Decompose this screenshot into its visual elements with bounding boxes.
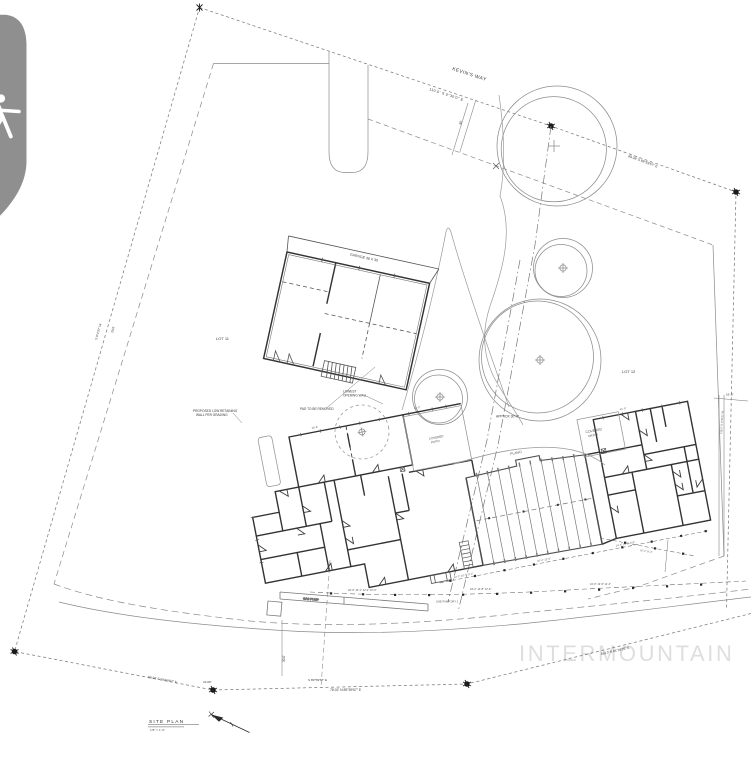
svg-text:PLANO: PLANO xyxy=(510,450,522,456)
svg-text:36'-8": 36'-8" xyxy=(311,425,318,430)
svg-text:20'-0" 16'-1" 12'-4" 10'-0": 20'-0" 16'-1" 12'-4" 10'-0" xyxy=(348,588,377,592)
svg-text:LOT 12: LOT 12 xyxy=(622,369,636,374)
svg-text:OPENING WALL: OPENING WALL xyxy=(343,394,367,398)
svg-text:16'-0" 13'-5" 11'-0": 16'-0" 13'-5" 11'-0" xyxy=(590,582,611,586)
svg-text:PATIO: PATIO xyxy=(431,439,441,445)
svg-text:41'-6": 41'-6" xyxy=(619,406,626,411)
svg-text:30.0': 30.0' xyxy=(282,655,286,662)
svg-text:1/8" = 1'-0": 1/8" = 1'-0" xyxy=(150,728,165,732)
svg-text:LINE PUMP DRY 2: LINE PUMP DRY 2 xyxy=(436,600,459,604)
svg-text:10'-2" 8'-4": 10'-2" 8'-4" xyxy=(640,548,653,554)
svg-text:16'-0": 16'-0" xyxy=(726,393,734,397)
svg-text:12'-1" 10'-5" 8'-2": 12'-1" 10'-5" 8'-2" xyxy=(453,571,473,579)
svg-text:89.38' S 89°59'57" E: 89.38' S 89°59'57" E xyxy=(628,154,659,169)
svg-text:PAD TO BE REMOVED: PAD TO BE REMOVED xyxy=(300,407,334,411)
svg-text:GARAGE 36 X 30: GARAGE 36 X 30 xyxy=(349,253,378,263)
svg-text:20.0': 20.0' xyxy=(110,325,116,333)
svg-text:18'-2" 14'-8" 12'-6": 18'-2" 14'-8" 12'-6" xyxy=(470,587,491,591)
svg-text:LOT 11: LOT 11 xyxy=(216,336,230,341)
svg-text:50.02' S 29°59'57" E: 50.02' S 29°59'57" E xyxy=(148,675,177,684)
svg-text:110.0' S 0°30'0" E: 110.0' S 0°30'0" E xyxy=(429,87,464,102)
svg-text:WALL PER GRADING: WALL PER GRADING xyxy=(196,413,228,417)
svg-text:APPROX 30'-0": APPROX 30'-0" xyxy=(496,415,520,419)
svg-text:78.02' N 89°59'57" E: 78.02' N 89°59'57" E xyxy=(330,688,362,692)
svg-text:24.08': 24.08' xyxy=(203,680,212,684)
svg-text:KEVIN'S WAY: KEVIN'S WAY xyxy=(451,66,487,83)
svg-text:S 89°59'57" E: S 89°59'57" E xyxy=(308,678,327,682)
svg-text:22'-0": 22'-0" xyxy=(413,405,420,410)
svg-text:SITE PLAN: SITE PLAN xyxy=(149,719,184,725)
svg-text:S 0°4'37" W: S 0°4'37" W xyxy=(94,323,102,340)
